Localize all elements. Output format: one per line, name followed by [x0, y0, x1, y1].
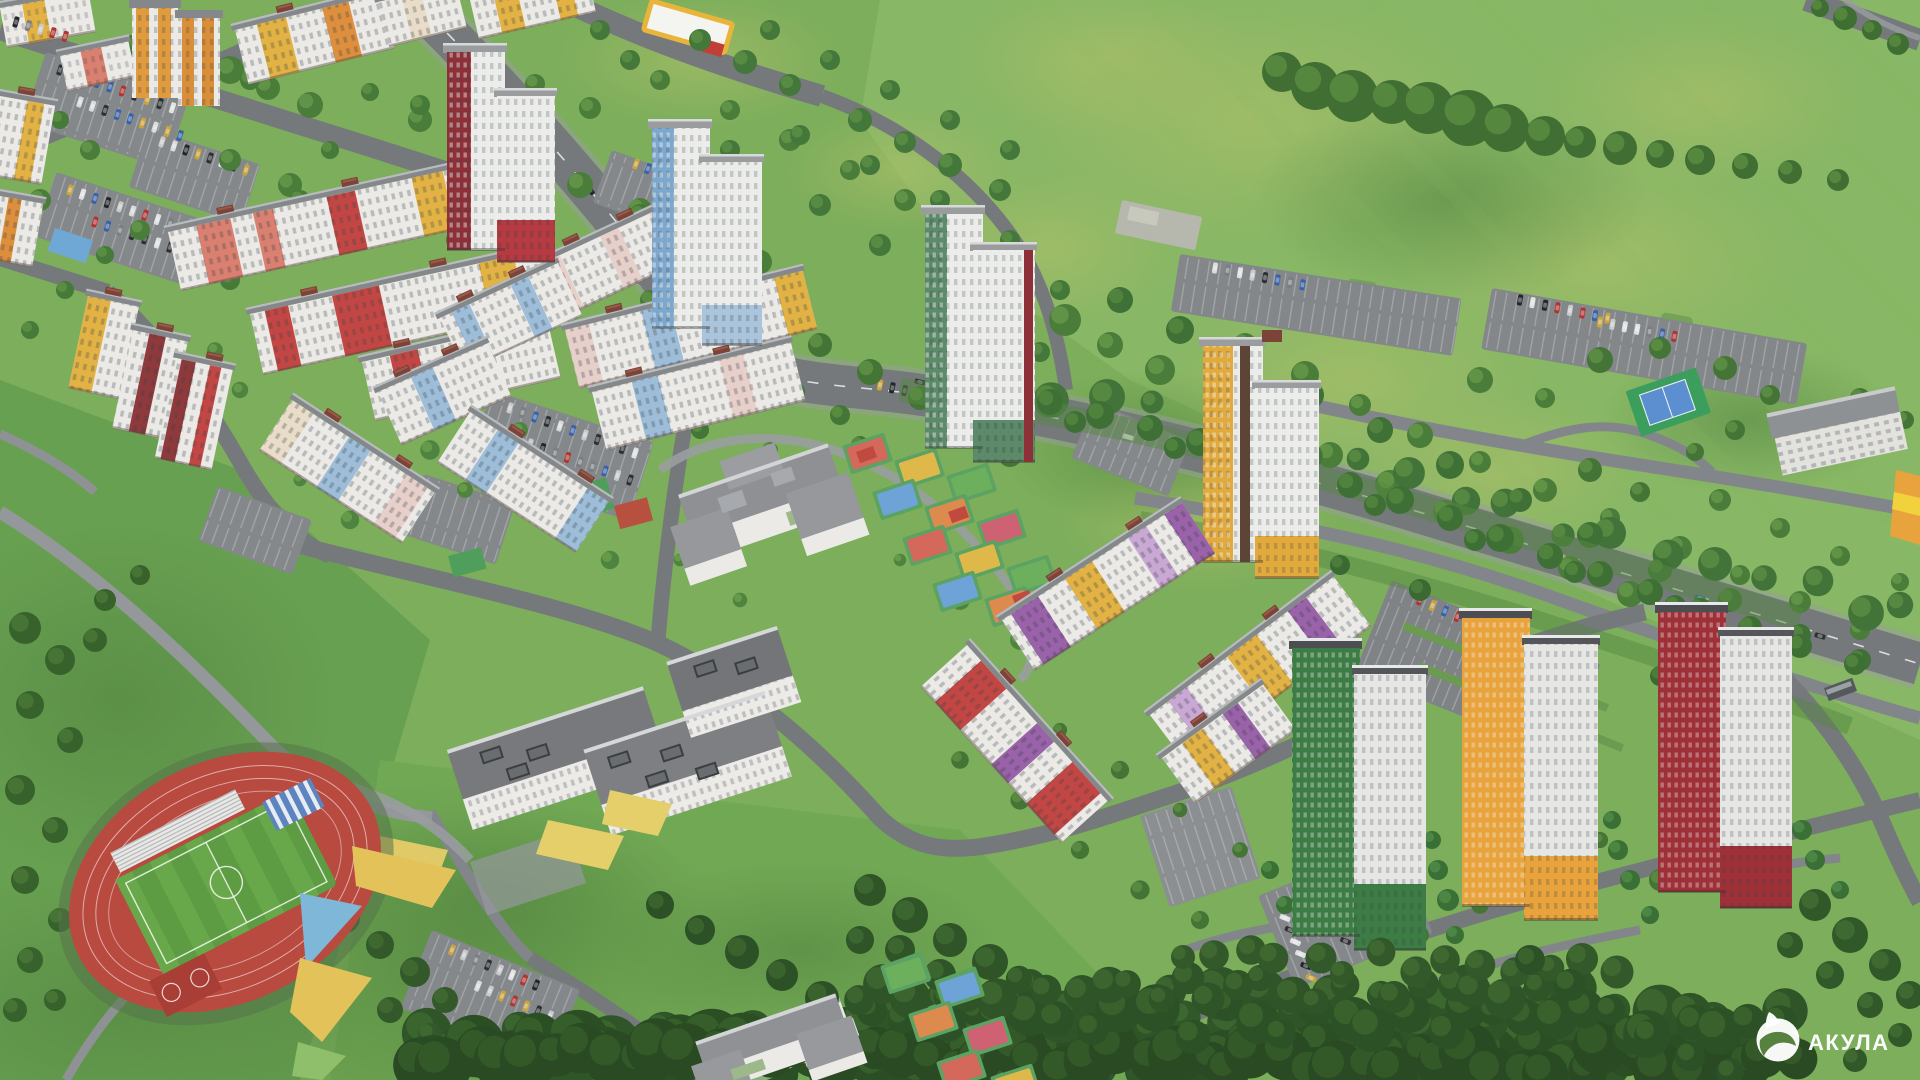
svg-text:АКУЛА: АКУЛА: [1808, 1030, 1890, 1055]
